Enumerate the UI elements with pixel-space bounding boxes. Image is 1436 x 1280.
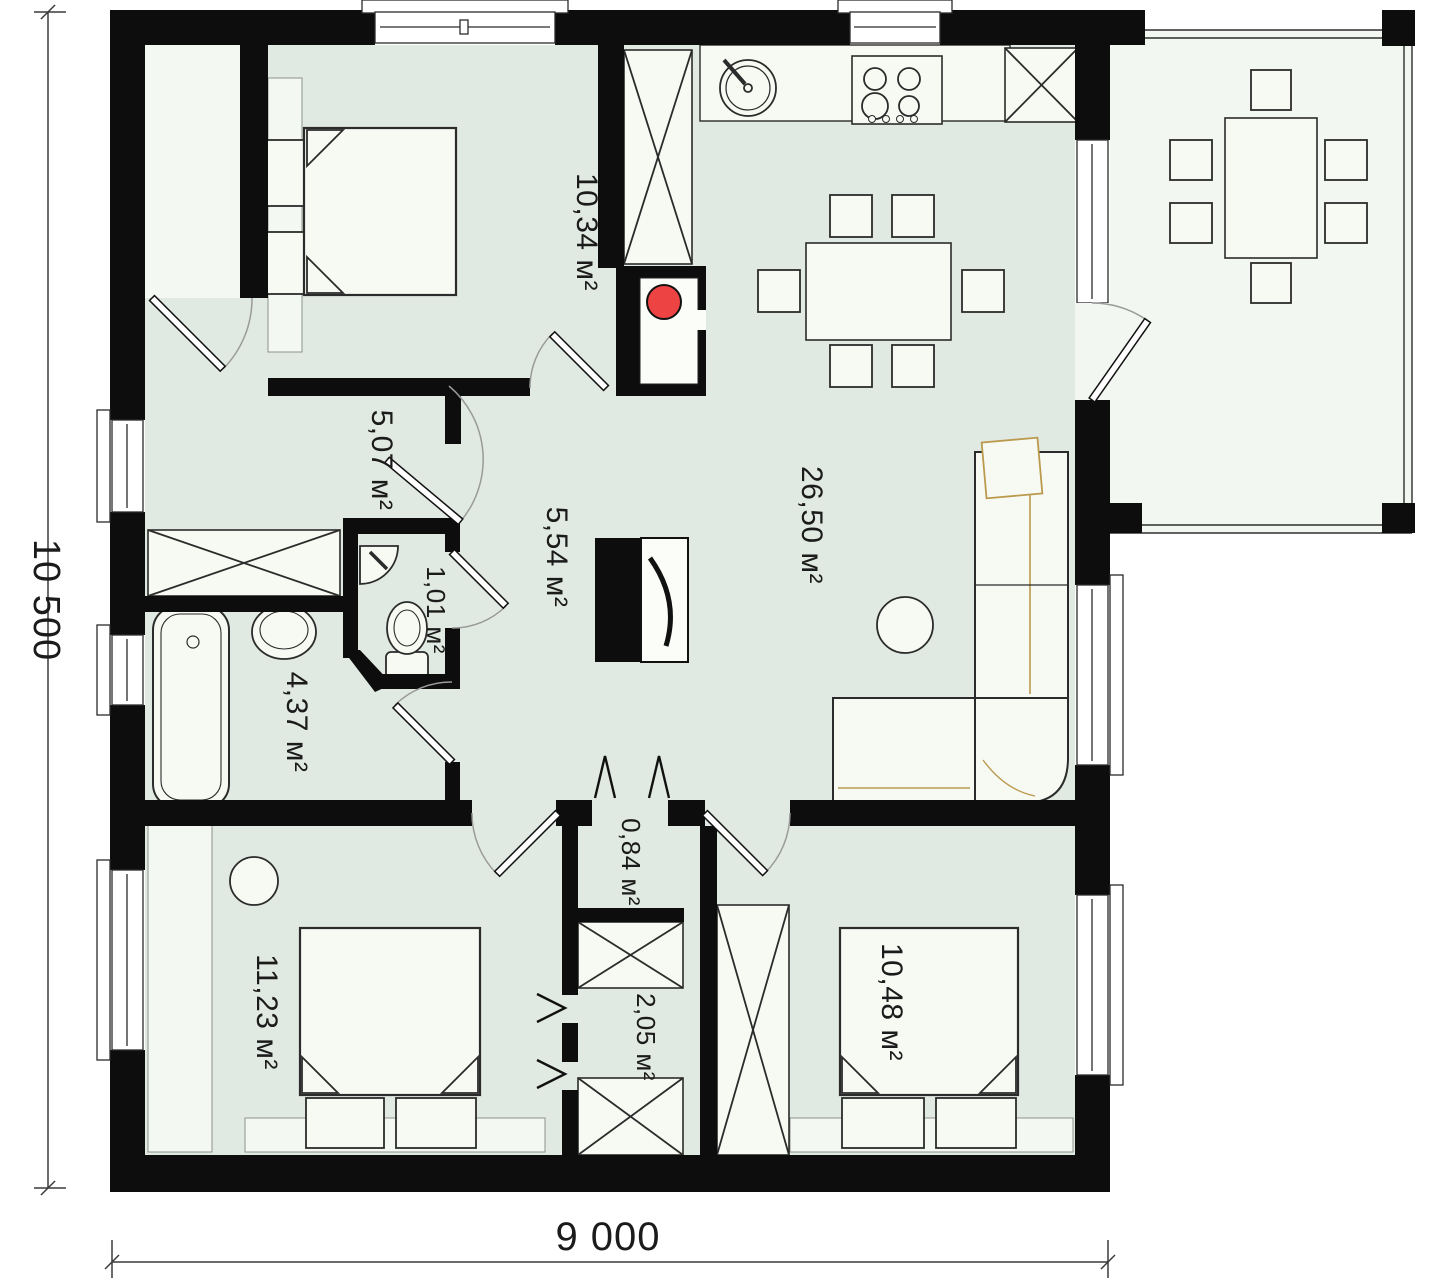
room-label-bedroom-bottom-left: 11,23 м² — [250, 954, 283, 1070]
fireplace-icon — [595, 538, 688, 662]
dimension-height-label: 10 500 — [25, 539, 67, 661]
boiler-niche — [616, 266, 706, 396]
room-label-bedroom-bottom-right: 10,48 м² — [875, 943, 908, 1061]
window-left-hall — [97, 410, 143, 522]
floor-plan-drawing: 10,34 м² 5,07 м² 5,54 м² 26,50 м² 1,01 м… — [0, 0, 1436, 1280]
bedroom-br-rug — [790, 1118, 1073, 1152]
dimension-width-label: 9 000 — [555, 1215, 660, 1259]
chair-round-bedroom-left — [230, 857, 278, 905]
wardrobe-closet-top — [578, 922, 683, 988]
window-right-living — [1077, 575, 1123, 775]
vestibule-floor — [145, 45, 240, 298]
bedroom-tl-shelf — [268, 78, 302, 352]
room-label-bathroom: 4,37 м² — [280, 672, 313, 773]
bathtub-icon — [153, 606, 229, 808]
room-label-closet: 2,05 м² — [631, 993, 661, 1081]
kitchen-cabinet — [1005, 48, 1078, 122]
wall-vestibule — [240, 45, 268, 298]
room-label-wc: 1,01 м² — [421, 566, 451, 654]
wardrobe-bedroom-bottom-right — [717, 905, 789, 1155]
room-label-hallway: 5,07 м² — [365, 410, 398, 511]
window-left-bedroom — [97, 860, 143, 1060]
wardrobe-closet-bottom — [578, 1078, 683, 1155]
room-label-hall: 5,54 м² — [540, 507, 573, 608]
boiler-icon — [647, 285, 681, 319]
room-label-bedroom-top-left: 10,34 м² — [570, 173, 603, 291]
bedroom-bl-rug — [245, 1118, 545, 1152]
window-terrace-door-side — [1077, 140, 1108, 303]
room-label-kitchen-living: 26,50 м² — [795, 466, 828, 584]
floor-plan-canvas: 10,34 м² 5,07 м² 5,54 м² 26,50 м² 1,01 м… — [0, 0, 1436, 1280]
window-right-bedroom — [1077, 885, 1123, 1085]
sofa-pillow — [982, 438, 1043, 499]
window-top-kitchen — [838, 0, 952, 43]
coffee-table-round — [877, 597, 933, 653]
stove-icon — [852, 56, 942, 124]
room-label-corridor: 0,84 м² — [616, 818, 646, 906]
wardrobe-bedroom-top-left — [624, 50, 692, 264]
wardrobe-hall — [148, 530, 340, 596]
window-top-bedroom — [362, 0, 568, 43]
bedroom-bl-side-strip — [148, 806, 212, 1152]
window-left-bathroom — [97, 625, 143, 715]
